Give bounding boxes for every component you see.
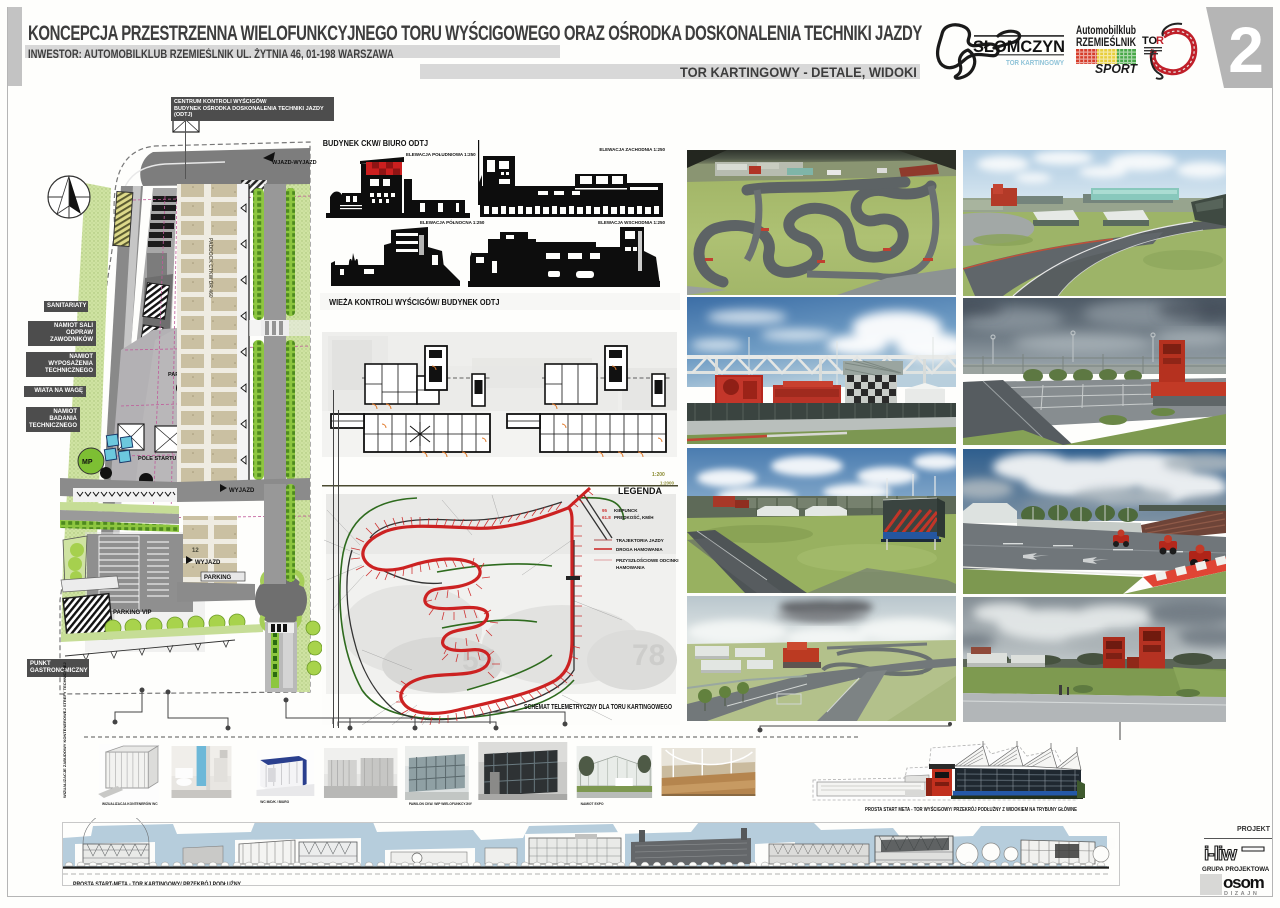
svg-text:PROSTA START-META - TOR KARTIN: PROSTA START-META - TOR KARTINGOWY/ PRZE…	[73, 880, 241, 888]
svg-text:12: 12	[192, 548, 199, 554]
svg-text:PRZYSZŁOŚCIOWE ODCINKI: PRZYSZŁOŚCIOWE ODCINKI	[616, 557, 679, 563]
svg-text:DROGA HAMOWANIA: DROGA HAMOWANIA	[616, 547, 663, 552]
svg-text:1:2000: 1:2000	[660, 481, 675, 486]
svg-text:TOR KARTINGOWY: TOR KARTINGOWY	[1006, 58, 1064, 67]
svg-text:GRUPA PROJEKTOWA: GRUPA PROJEKTOWA	[1202, 866, 1270, 873]
svg-text:ELEWACJA PÓŁNOCNA 1:250: ELEWACJA PÓŁNOCNA 1:250	[420, 218, 485, 225]
svg-text:HAMOWANIA: HAMOWANIA	[616, 565, 645, 570]
svg-text:i-liw: i-liw	[1204, 844, 1237, 865]
svg-text:PRĘDKOŚĆ, KM/H: PRĘDKOŚĆ, KM/H	[614, 513, 654, 520]
svg-text:R: R	[1156, 35, 1164, 47]
svg-text:WIZUALIZACJA KONTENERÓW WC: WIZUALIZACJA KONTENERÓW WC	[102, 801, 158, 806]
svg-text:WIEŻA KONTROLI WYŚCIGÓW/ BUDYN: WIEŻA KONTROLI WYŚCIGÓW/ BUDYNEK ODTJ	[329, 298, 499, 307]
svg-text:NAMIOT EXPO: NAMIOT EXPO	[581, 802, 604, 806]
svg-text:POLE STARTU: POLE STARTU	[138, 456, 176, 462]
svg-text:TRAJEKTORIA JAZDY: TRAJEKTORIA JAZDY	[616, 538, 664, 543]
svg-text:SŁOMCZYN: SŁOMCZYN	[973, 37, 1065, 56]
svg-text:1:200: 1:200	[652, 472, 665, 478]
svg-text:WC M/D/K / BIURO: WC M/D/K / BIURO	[260, 800, 289, 804]
svg-text:PADDOCK CTKW DR 460: PADDOCK CTKW DR 460	[207, 238, 213, 298]
svg-text:SPORT: SPORT	[1095, 61, 1138, 76]
svg-text:WJAZD-WYJAZD: WJAZD-WYJAZD	[272, 160, 317, 166]
svg-text:ELEWACJA WSCHODNIA 1:250: ELEWACJA WSCHODNIA 1:250	[598, 220, 665, 225]
svg-text:ELEWACJA POŁUDNIOWA 1:250: ELEWACJA POŁUDNIOWA 1:250	[406, 152, 476, 157]
svg-text:61.8: 61.8	[602, 515, 611, 520]
svg-text:PARKING: PARKING	[204, 575, 232, 581]
svg-text:LEGENDA: LEGENDA	[618, 486, 663, 496]
svg-text:DIZAJN: DIZAJN	[1224, 891, 1259, 896]
svg-text:WYJAZD: WYJAZD	[195, 560, 221, 566]
svg-text:PROSTA START META - TOR WYŚCIG: PROSTA START META - TOR WYŚCIGOWY/ PRZEK…	[865, 805, 1077, 813]
svg-text:osom: osom	[1223, 874, 1265, 892]
svg-text:ELEWACJA ZACHODNIA 1:250: ELEWACJA ZACHODNIA 1:250	[599, 147, 665, 152]
svg-text:RZEMIEŚLNIK: RZEMIEŚLNIK	[1076, 34, 1136, 49]
svg-text:BUDYNEK CKW/ BIURO ODTJ: BUDYNEK CKW/ BIURO ODTJ	[323, 139, 428, 148]
svg-text:KIEPUNCK: KIEPUNCK	[614, 508, 638, 513]
svg-text:PAWILON CKW. WIP WIELOFUNKCYJN: PAWILON CKW. WIP WIELOFUNKCYJNY	[409, 802, 473, 806]
svg-text:2: 2	[1228, 14, 1264, 86]
svg-text:95: 95	[602, 508, 608, 513]
svg-text:WYJAZD: WYJAZD	[229, 488, 255, 494]
svg-text:MP: MP	[82, 459, 93, 466]
